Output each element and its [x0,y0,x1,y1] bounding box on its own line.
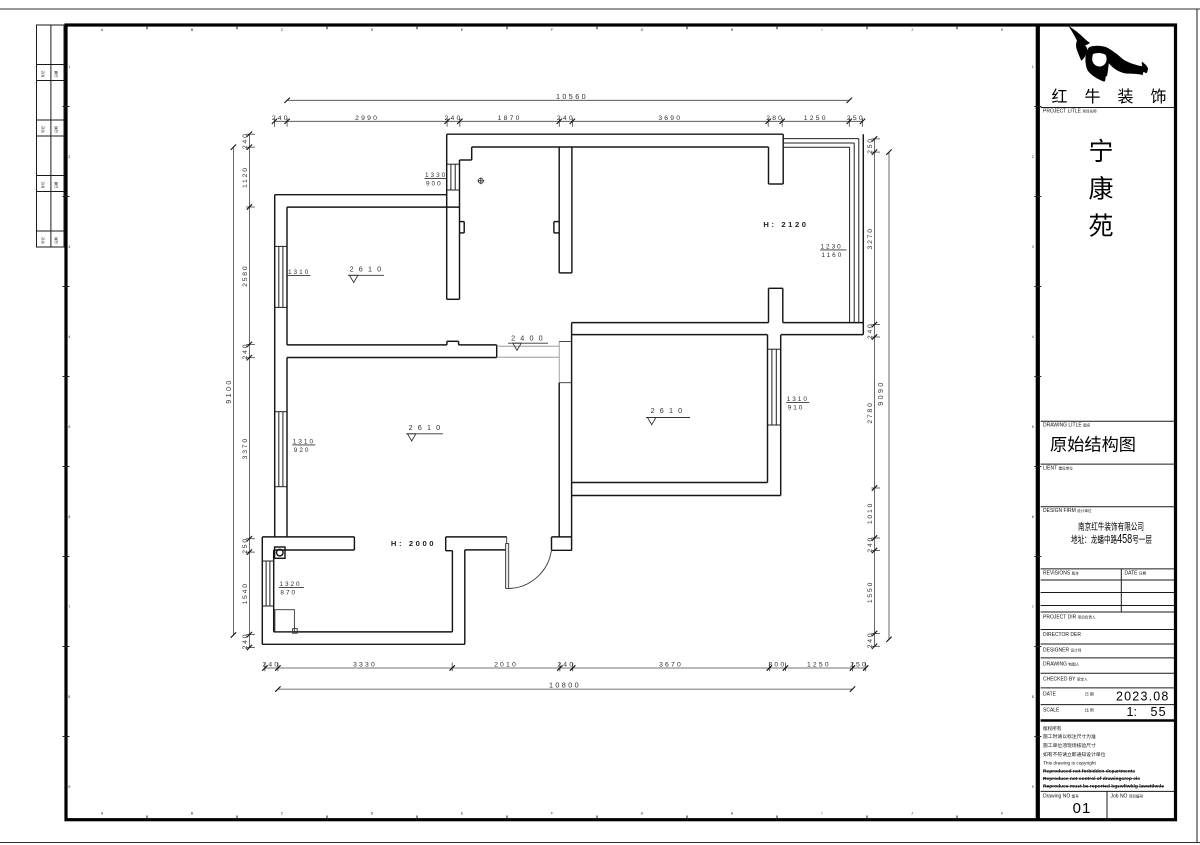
svg-text:910: 910 [788,404,805,411]
svg-text:2: 2 [68,155,70,159]
svg-text:7: 7 [1032,605,1034,609]
svg-text:1: 1 [68,65,70,69]
svg-text:1870: 1870 [498,115,522,122]
svg-text:南京红牛装饰有限公司: 南京红牛装饰有限公司 [1078,521,1144,533]
svg-text:1120: 1120 [242,166,249,188]
svg-text:250: 250 [847,115,865,122]
svg-text:240: 240 [557,662,575,669]
svg-text:870: 870 [280,589,297,596]
svg-text:标记: 标记 [40,70,45,77]
svg-text:Reproduced not forbidden depar: Reproduced not forbidden departments [1043,768,1135,774]
svg-text:标记: 标记 [40,126,45,133]
svg-text:240: 240 [242,132,249,149]
svg-text:10560: 10560 [556,92,588,101]
svg-text:240: 240 [867,632,874,649]
svg-text:240: 240 [272,115,290,122]
svg-text:G: G [641,812,644,816]
svg-text:2010: 2010 [494,662,518,669]
svg-text:8: 8 [68,695,70,699]
svg-text:1550: 1550 [867,581,874,603]
svg-text:3330: 3330 [353,662,377,669]
svg-text:2610: 2610 [350,265,387,274]
svg-text:240: 240 [867,536,874,553]
svg-text:55: 55 [1151,705,1167,719]
svg-text:日期: 日期 [54,71,59,77]
svg-text:1250: 1250 [807,662,831,669]
svg-text:920: 920 [294,447,311,454]
svg-text:01: 01 [1073,800,1092,817]
svg-text:标记: 标记 [40,237,45,244]
svg-text:2610: 2610 [409,423,446,432]
svg-text:2580: 2580 [242,265,249,287]
svg-text:宁: 宁 [1088,138,1113,166]
svg-text:SCALE: SCALE [1043,708,1060,714]
svg-text:1310: 1310 [293,438,315,445]
svg-text:比 例: 比 例 [1085,708,1094,713]
svg-text:Reproduce not control of drawi: Reproduce not control of drawingsrep els [1043,776,1140,782]
svg-text:版权所有: 版权所有 [1043,725,1062,732]
svg-text:250: 250 [867,137,874,154]
svg-text:1320: 1320 [279,581,301,588]
svg-text:F: F [551,28,553,32]
svg-text:6: 6 [1032,515,1034,519]
svg-text:2023.08: 2023.08 [1116,690,1170,704]
svg-text:240: 240 [867,322,874,339]
svg-text:280: 280 [766,115,784,122]
svg-text:9: 9 [68,785,70,789]
svg-text:2990: 2990 [355,115,379,122]
svg-text:1230: 1230 [821,243,843,250]
svg-text:3: 3 [68,245,70,249]
svg-text:如有不符请立即通知设计单位: 如有不符请立即通知设计单位 [1043,751,1106,758]
svg-text:9: 9 [1032,785,1034,789]
svg-text:250: 250 [242,537,249,554]
svg-text:Reproduce must be reported bgs: Reproduce must be reported bgswfiwblg la… [1043,784,1164,790]
svg-text:2400: 2400 [511,334,548,343]
svg-text:240: 240 [242,633,249,650]
svg-text:1310: 1310 [288,269,310,276]
svg-text:1010: 1010 [867,502,874,524]
svg-text:4: 4 [1032,335,1034,339]
svg-text:3670: 3670 [659,662,683,669]
svg-text:2: 2 [1032,155,1034,159]
svg-text:1250: 1250 [804,115,828,122]
svg-text:300: 300 [768,662,786,669]
svg-text:G: G [641,28,644,32]
svg-text:240: 240 [445,115,463,122]
svg-text:2780: 2780 [867,401,874,423]
svg-text:3370: 3370 [242,437,249,459]
svg-text:6: 6 [68,515,70,519]
svg-text:1330: 1330 [425,172,447,179]
svg-text:250: 250 [850,662,868,669]
svg-text:3270: 3270 [867,227,874,249]
svg-text:H: 2000: H: 2000 [391,539,436,548]
svg-text:8: 8 [1032,695,1034,699]
svg-text:H: 2120: H: 2120 [763,220,808,229]
svg-text:I: I [822,812,823,816]
svg-text:标记: 标记 [40,181,45,188]
svg-text:2610: 2610 [651,406,688,415]
svg-text:9100: 9100 [224,378,233,404]
svg-text:红牛装饰: 红牛装饰 [1052,88,1184,106]
svg-text:苑: 苑 [1088,213,1113,241]
svg-text:施工时请以标注尺寸为准: 施工时请以标注尺寸为准 [1043,733,1096,740]
svg-text:日期: 日期 [54,126,59,132]
svg-text:日期: 日期 [54,237,59,243]
svg-text:日期: 日期 [54,182,59,188]
svg-text:3: 3 [1032,245,1034,249]
svg-text:J: J [911,28,913,32]
svg-text:1310: 1310 [787,396,809,403]
svg-text:DIRECTOR DER: DIRECTOR DER [1043,632,1081,638]
svg-text:DATE: DATE [1043,692,1057,698]
svg-text:日 期: 日 期 [1085,692,1094,697]
svg-text:4: 4 [68,335,70,339]
svg-text:1:: 1: [1127,705,1137,719]
svg-text:1160: 1160 [822,252,844,259]
svg-text:900: 900 [426,181,443,188]
svg-text:5: 5 [1032,425,1034,429]
svg-text:I: I [822,28,823,32]
svg-text:施工单位须现场核验尺寸: 施工单位须现场核验尺寸 [1043,742,1096,749]
svg-text:F: F [551,812,553,816]
svg-text:1: 1 [1032,65,1034,69]
svg-text:This drawing is copyright: This drawing is copyright [1043,760,1096,766]
svg-text:9090: 9090 [876,380,885,406]
svg-text:7: 7 [68,605,70,609]
svg-text:1540: 1540 [242,582,249,604]
svg-text:J: J [911,812,913,816]
svg-text:原始结构图: 原始结构图 [1050,436,1136,455]
svg-text:5: 5 [68,425,70,429]
svg-text:康: 康 [1088,175,1113,203]
svg-text:240: 240 [557,115,575,122]
svg-text:3690: 3690 [658,115,682,122]
svg-text:240: 240 [262,662,280,669]
svg-text:10800: 10800 [549,681,581,690]
svg-text:240: 240 [242,343,249,360]
